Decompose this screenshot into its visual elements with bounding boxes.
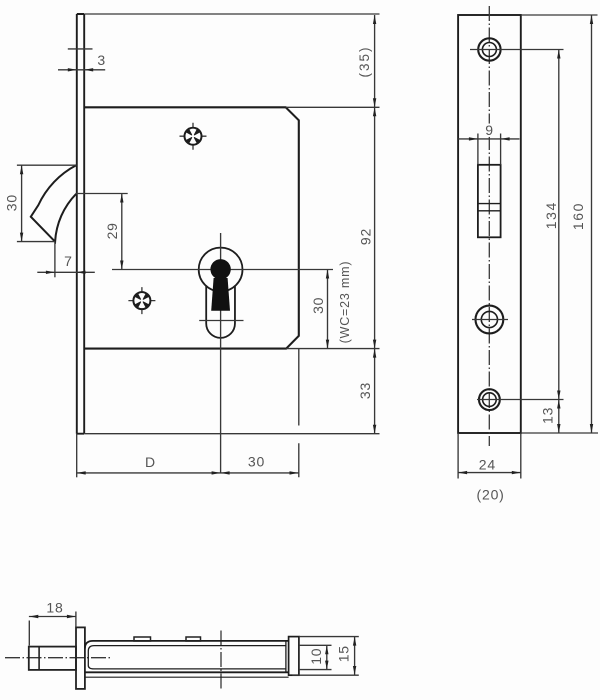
svg-text:30: 30 xyxy=(248,454,265,470)
svg-text:(20): (20) xyxy=(477,486,505,502)
svg-text:134: 134 xyxy=(543,201,559,229)
svg-text:(35): (35) xyxy=(357,45,372,77)
svg-text:29: 29 xyxy=(104,222,120,239)
svg-text:160: 160 xyxy=(570,202,586,230)
svg-text:7: 7 xyxy=(64,253,73,269)
svg-text:92: 92 xyxy=(358,228,374,245)
svg-text:D: D xyxy=(145,454,156,470)
svg-text:13: 13 xyxy=(539,407,555,424)
svg-text:33: 33 xyxy=(357,382,373,399)
svg-text:10: 10 xyxy=(308,648,324,665)
svg-text:18: 18 xyxy=(46,600,63,616)
svg-text:30: 30 xyxy=(310,297,326,314)
svg-text:9: 9 xyxy=(485,122,494,138)
svg-text:24: 24 xyxy=(479,457,496,473)
svg-text:3: 3 xyxy=(97,52,106,68)
svg-text:15: 15 xyxy=(336,645,352,662)
svg-text:(WC=23 mm): (WC=23 mm) xyxy=(338,261,352,344)
svg-text:30: 30 xyxy=(3,194,19,211)
